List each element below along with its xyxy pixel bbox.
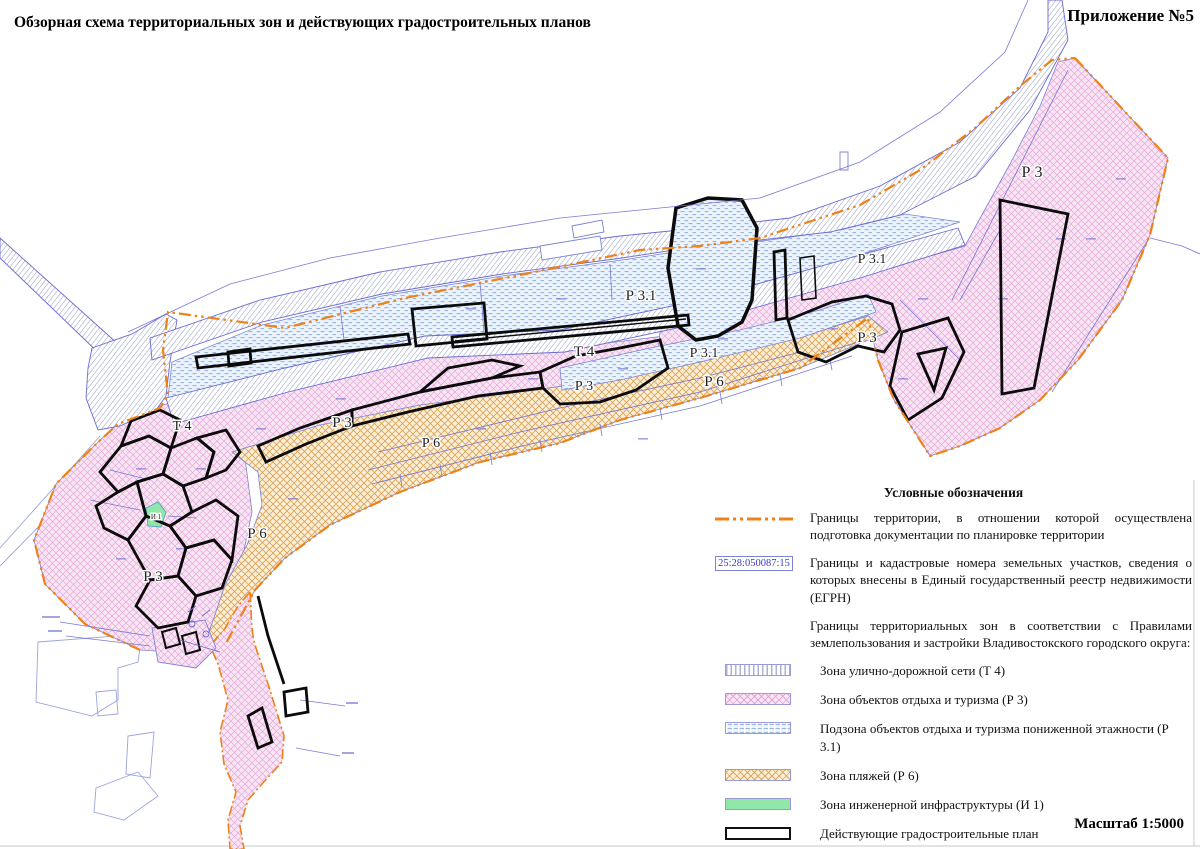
legend-zone-r6: Зона пляжей (Р 6)	[715, 767, 1192, 784]
page-title: Обзорная схема территориальных зон и дей…	[14, 14, 694, 32]
legend-zone-i1: Зона инженерной инфраструктуры (И 1)	[715, 796, 1192, 813]
legend-zone-r31: Подзона объектов отдыха и туризма пониже…	[715, 720, 1192, 754]
zone-label: Р 3	[575, 379, 593, 394]
zone-label: Р 3.1	[690, 346, 719, 361]
zone-label: Р 3	[143, 569, 163, 585]
legend-zone-t4: Зона улично-дорожной сети (Т 4)	[715, 662, 1192, 679]
appendix-label: Приложение №5	[1067, 6, 1194, 26]
zone-label: Р 6	[704, 374, 724, 390]
legend-zone-r3: Зона объектов отдыха и туризма (Р 3)	[715, 691, 1192, 708]
empty-symbol	[715, 617, 810, 619]
legend-heading: Условные обозначения	[715, 485, 1192, 501]
territory-boundary-symbol	[715, 509, 810, 527]
legend-zone-text: Зона улично-дорожной сети (Т 4)	[820, 662, 1192, 679]
zone-label: Р 3.1	[626, 288, 657, 304]
legend: Условные обозначения Границы территории,…	[715, 485, 1192, 849]
legend-zone-text: Подзона объектов отдыха и туризма пониже…	[820, 720, 1192, 754]
legend-item-boundary: Границы территории, в отношении которой …	[715, 509, 1192, 543]
zone-label: Р 3	[1022, 164, 1043, 181]
plan-pentagon	[668, 198, 757, 340]
map-scale: Масштаб 1:5000	[1074, 816, 1184, 833]
legend-zone-text: Зона инженерной инфраструктуры (И 1)	[820, 796, 1192, 813]
legend-zone-text: Зона объектов отдыха и туризма (Р 3)	[820, 691, 1192, 708]
legend-item-text: Границы и кадастровые номера земельных у…	[810, 554, 1192, 605]
legend-item-text: Границы территории, в отношении которой …	[810, 509, 1192, 543]
t4-swatch	[725, 662, 820, 676]
zone-label: Т 4	[574, 344, 595, 360]
legend-item-text: Границы территориальных зон в соответств…	[810, 617, 1192, 651]
scheme-page: Р 3Р 3.1Р 3.1Т 4Р 3.1Р 3Р 6Р 3Р 3Р 6Т 4Р…	[0, 0, 1200, 849]
zone-label: Р 6	[422, 436, 440, 451]
legend-item-zones-intro: Границы территориальных зон в соответств…	[715, 617, 1192, 651]
zone-label: Р 3.1	[858, 252, 887, 267]
zone-label: Р 3	[857, 330, 877, 346]
zone-label: Р 6	[247, 526, 267, 542]
zone-label: Т 4	[172, 419, 191, 434]
cadastral-number: 25:28:050087:15	[715, 556, 793, 571]
legend-zone-text: Зона пляжей (Р 6)	[820, 767, 1192, 784]
r6-swatch	[725, 767, 820, 781]
zone-label: Р 3	[332, 415, 352, 431]
i1-swatch	[725, 796, 820, 810]
r31-swatch	[725, 720, 820, 734]
zone-label: И 1	[151, 513, 162, 521]
plan-swatch	[725, 825, 820, 840]
r3-swatch	[725, 691, 820, 705]
legend-item-cadastral: 25:28:050087:15 Границы и кадастровые но…	[715, 554, 1192, 605]
cadastral-box-symbol: 25:28:050087:15	[715, 554, 810, 571]
